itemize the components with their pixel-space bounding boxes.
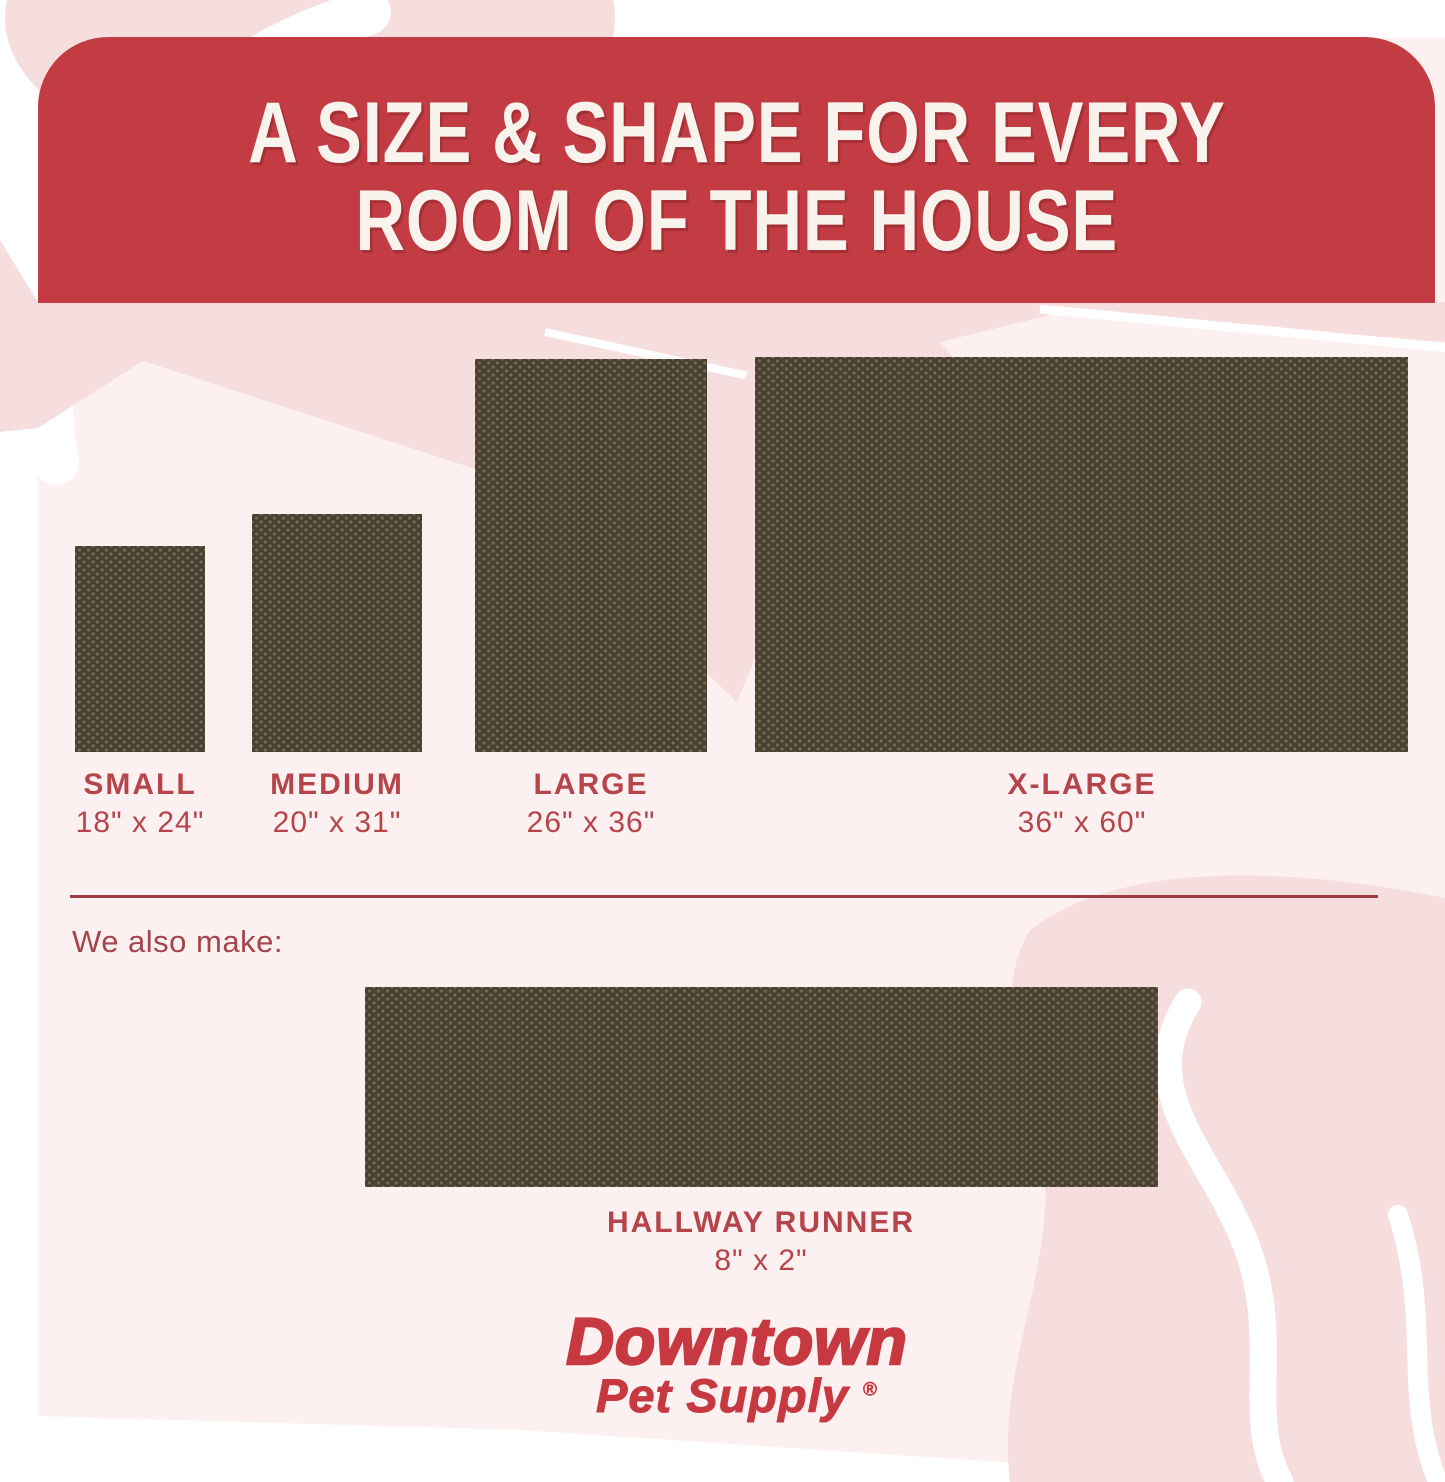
- mat-xlarge: [755, 357, 1408, 752]
- size-dims-large: 26" x 36": [527, 806, 656, 840]
- brand-logo-line2: Pet Supply ®: [596, 1368, 878, 1423]
- size-dims-medium: 20" x 31": [273, 806, 402, 840]
- header-title-line1: A SIZE & SHAPE FOR EVERY: [248, 89, 1225, 177]
- mat-hallway-runner: [365, 987, 1158, 1187]
- brand-logo-text: Pet Supply: [596, 1369, 849, 1422]
- mat-medium: [252, 514, 422, 752]
- mat-small: [75, 546, 205, 752]
- size-name-small: SMALL: [83, 768, 196, 802]
- size-name-medium: MEDIUM: [270, 768, 404, 802]
- size-name-xlarge: X-LARGE: [1008, 768, 1157, 802]
- size-dims-runner: 8" x 2": [714, 1244, 807, 1278]
- header-banner: A SIZE & SHAPE FOR EVERY ROOM OF THE HOU…: [38, 37, 1435, 303]
- size-dims-small: 18" x 24": [76, 806, 205, 840]
- size-name-runner: HALLWAY RUNNER: [607, 1206, 915, 1240]
- also-make-label: We also make:: [72, 924, 283, 960]
- mat-large: [475, 359, 707, 752]
- section-divider: [70, 895, 1378, 898]
- header-title-line2: ROOM OF THE HOUSE: [355, 177, 1118, 265]
- infographic-canvas: A SIZE & SHAPE FOR EVERY ROOM OF THE HOU…: [0, 0, 1445, 1482]
- size-dims-xlarge: 36" x 60": [1018, 806, 1147, 840]
- registered-trademark-icon: ®: [863, 1379, 878, 1400]
- size-name-large: LARGE: [534, 768, 649, 802]
